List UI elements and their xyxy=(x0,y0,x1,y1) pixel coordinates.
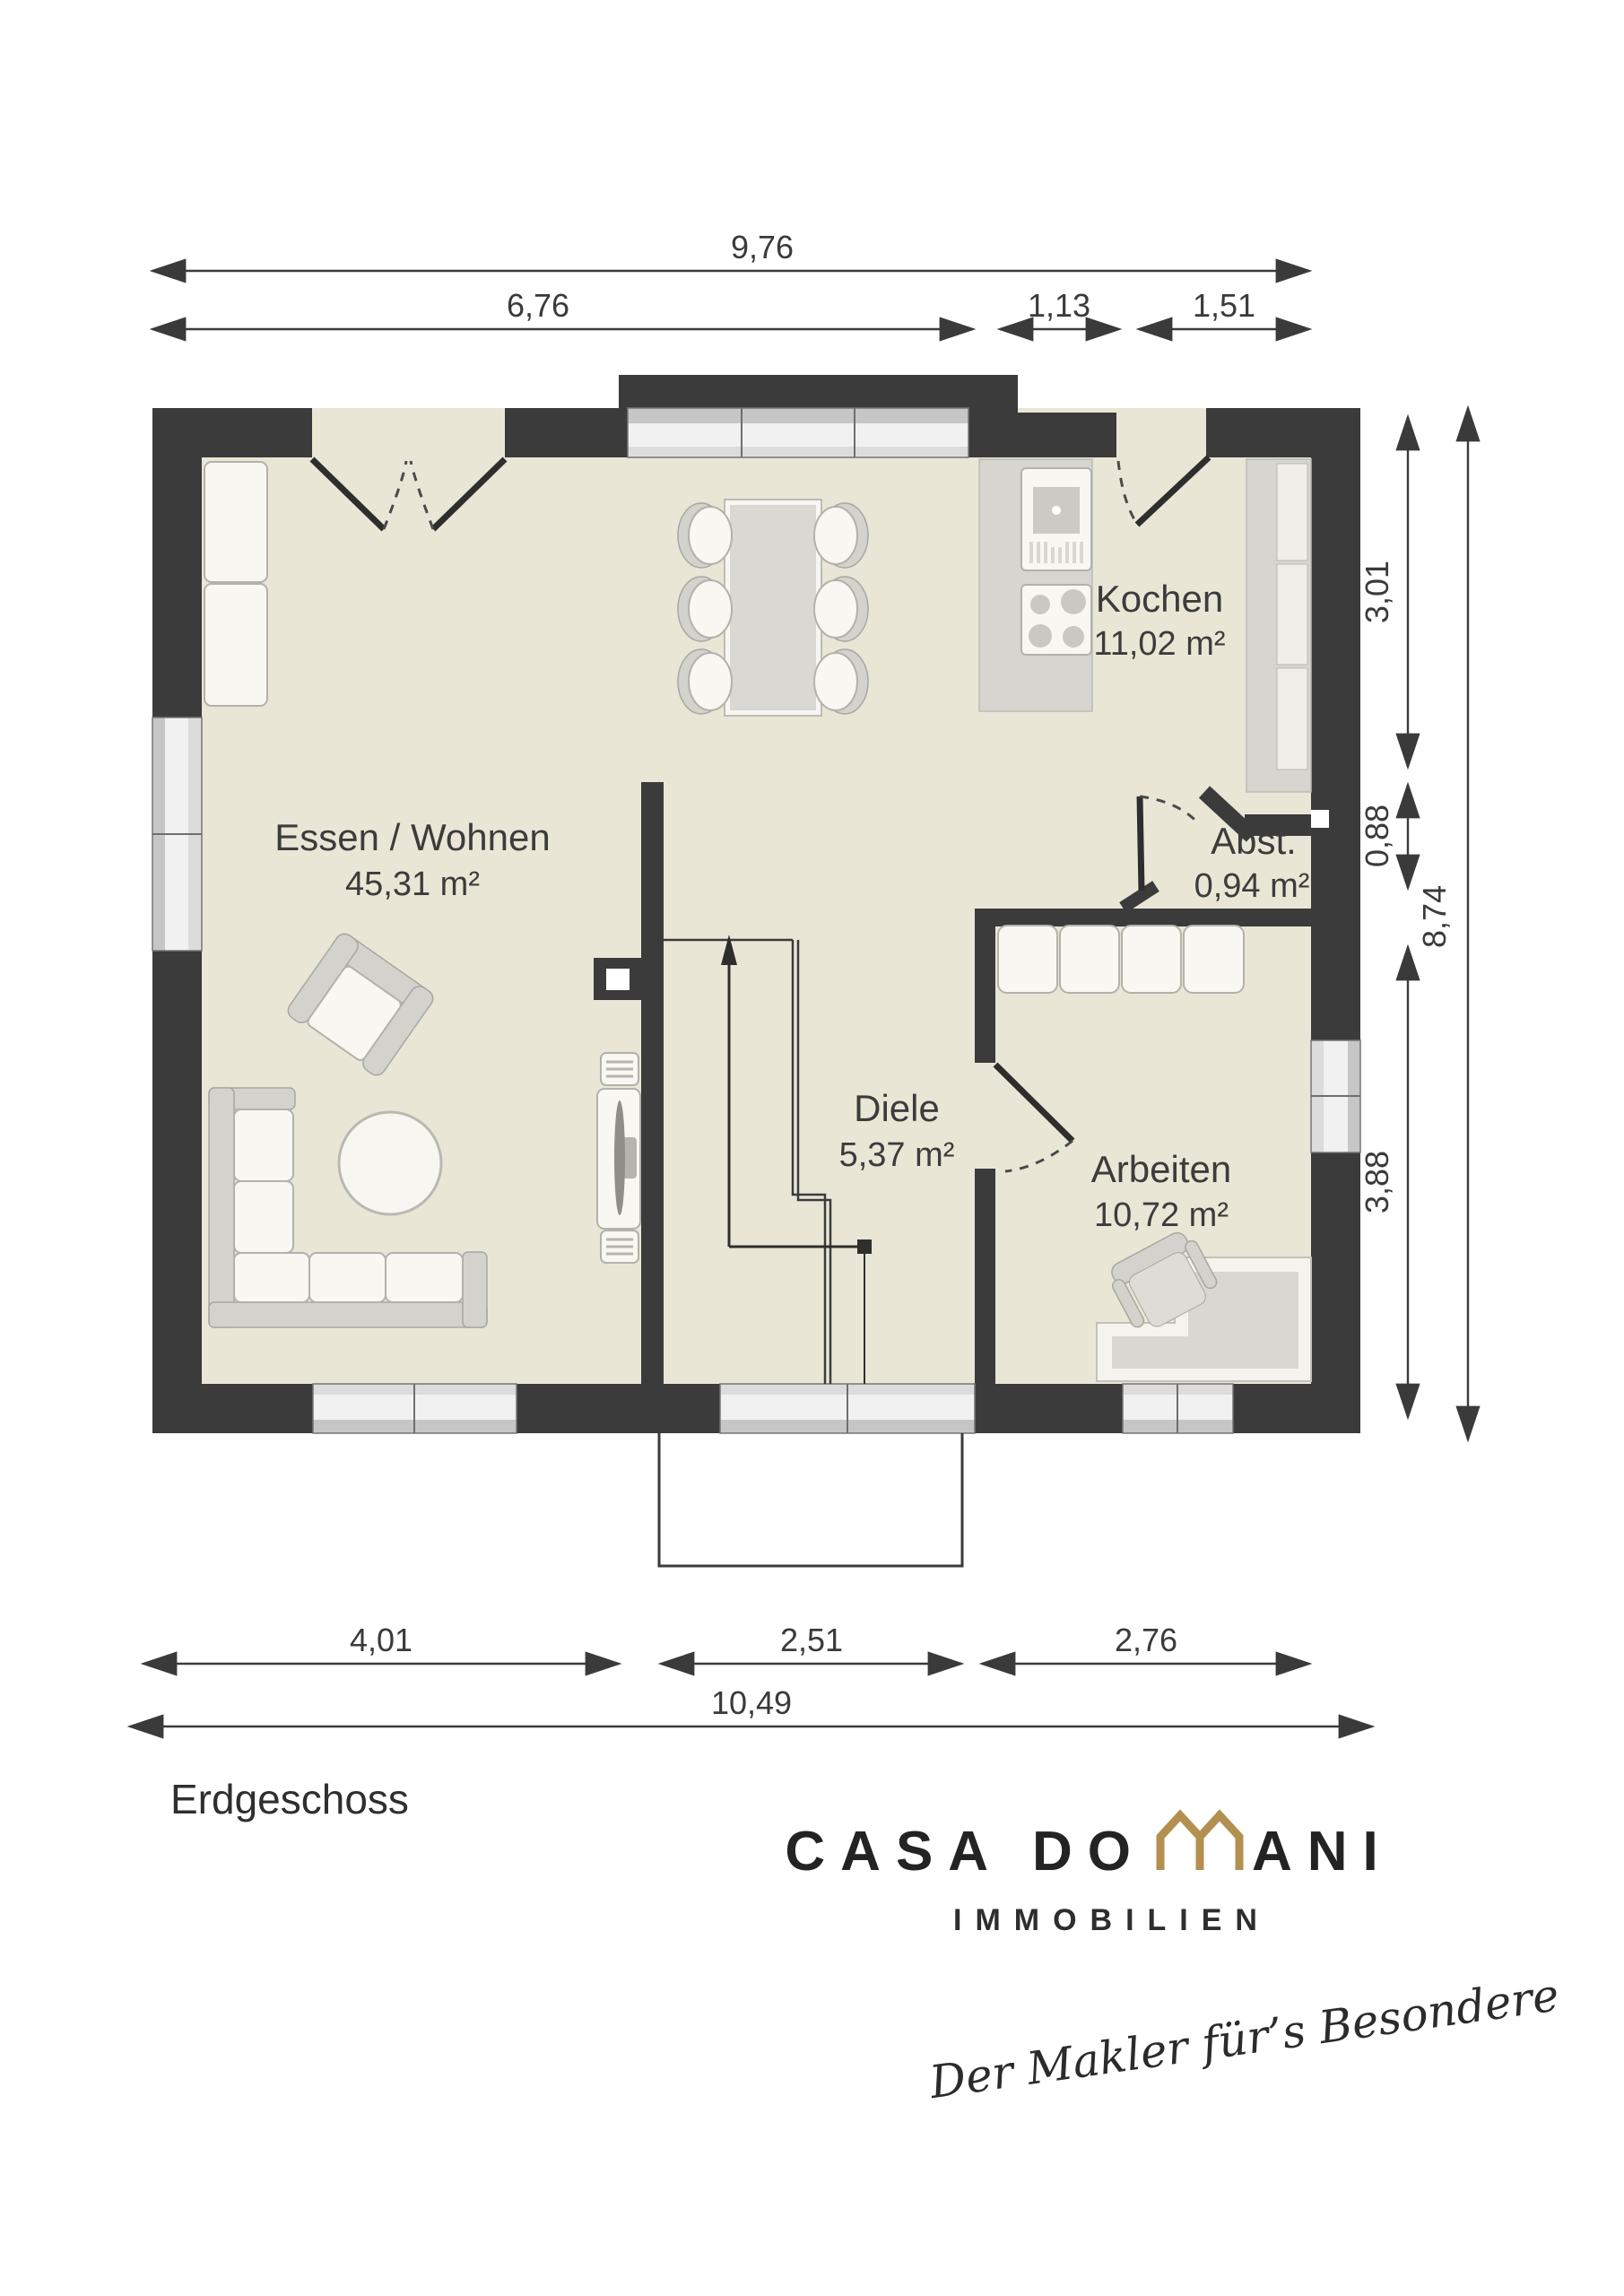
brand-tagline: Der Makler für’s Besondere xyxy=(925,1969,1562,2109)
dim-bottom-seg1: 4,01 xyxy=(350,1622,413,1658)
room-label-kochen: Kochen xyxy=(1096,578,1223,620)
dim-right-seg1: 3,01 xyxy=(1359,561,1395,623)
dim-top-seg2: 1,13 xyxy=(1028,287,1090,324)
dining-table xyxy=(725,500,821,716)
dim-bottom-seg2: 2,51 xyxy=(780,1622,843,1658)
entrance-porch xyxy=(659,1433,962,1566)
dim-bottom-seg3: 2,76 xyxy=(1115,1622,1177,1658)
room-area-diele: 5,37 m² xyxy=(839,1136,955,1174)
dim-right-seg3: 3,88 xyxy=(1359,1151,1395,1213)
dim-right-seg2: 0,88 xyxy=(1359,804,1395,867)
window-bottom-left xyxy=(313,1384,517,1433)
kitchen-island-counter xyxy=(979,459,1092,711)
room-label-diele: Diele xyxy=(854,1087,940,1129)
window-bottom-middle xyxy=(720,1384,975,1433)
tv-screen xyxy=(614,1100,625,1215)
window-top xyxy=(628,408,968,457)
coffee-table xyxy=(339,1112,441,1214)
tv-sideboard xyxy=(597,1053,640,1263)
window-left xyxy=(152,717,202,951)
room-area-abst: 0,94 m² xyxy=(1194,867,1310,905)
brand-logo: CASA DO ANI IMMOBILIEN Der Makler für’s … xyxy=(785,1815,1562,2109)
brand-house-m-icon xyxy=(1160,1815,1239,1870)
room-area-wohnen: 45,31 m² xyxy=(345,865,480,903)
tall-cabinet xyxy=(204,462,267,706)
dim-top-seg1: 6,76 xyxy=(507,287,569,324)
kitchen-stove xyxy=(1021,585,1091,655)
dim-right-total: 8,74 xyxy=(1416,885,1453,948)
floorplan-page: Essen / Wohnen 45,31 m² Kochen 11,02 m² … xyxy=(0,0,1624,2296)
brand-division: IMMOBILIEN xyxy=(953,1903,1271,1937)
room-label-arbeiten: Arbeiten xyxy=(1091,1148,1231,1190)
office-wardrobe xyxy=(998,926,1244,993)
floorplan-drawing: Essen / Wohnen 45,31 m² Kochen 11,02 m² … xyxy=(0,0,1624,2296)
brand-name-right: ANI xyxy=(1252,1821,1394,1883)
wall-step-notch xyxy=(1311,810,1329,828)
room-area-arbeiten: 10,72 m² xyxy=(1094,1196,1229,1234)
room-label-wohnen: Essen / Wohnen xyxy=(274,816,550,858)
dim-top-total: 9,76 xyxy=(731,229,794,265)
brand-name-left: CASA DO xyxy=(785,1821,1146,1883)
kitchen-sink xyxy=(1021,468,1091,570)
dim-top-seg3: 1,51 xyxy=(1193,287,1255,324)
floor-level-label: Erdgeschoss xyxy=(170,1776,409,1822)
kitchen-wall-cabinets xyxy=(1246,459,1311,792)
room-label-abst: Abst. xyxy=(1211,820,1297,862)
room-area-kochen: 11,02 m² xyxy=(1093,625,1225,663)
window-right xyxy=(1311,1040,1360,1152)
window-bottom-right xyxy=(1123,1384,1233,1433)
dim-bottom-total: 10,49 xyxy=(711,1684,792,1721)
